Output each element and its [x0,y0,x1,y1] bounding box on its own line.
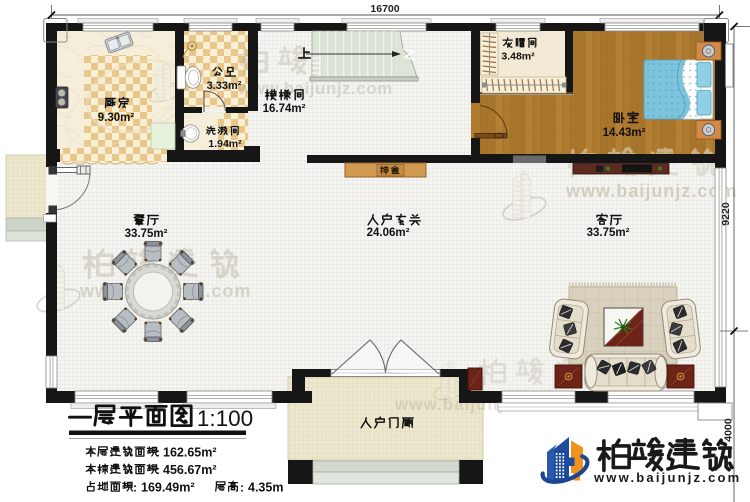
svg-text:16.74m²: 16.74m² [263,103,306,115]
svg-text:169.49m²: 169.49m² [141,481,195,495]
svg-text:www.baijunjz.com: www.baijunjz.com [593,470,741,485]
svg-text:1:100: 1:100 [197,406,253,431]
svg-text:www.baijunjz.com: www.baijunjz.com [237,79,393,98]
svg-text:www.baijunjz.com: www.baijunjz.com [565,181,737,201]
svg-text:14.43m²: 14.43m² [603,127,646,139]
svg-text::: : [156,463,160,477]
svg-text:33.75m²: 33.75m² [125,228,168,240]
svg-text:3.33m²: 3.33m² [207,80,242,92]
svg-text::: : [240,481,244,495]
svg-text:33.75m²: 33.75m² [587,227,630,239]
svg-text:9.30m²: 9.30m² [98,112,135,124]
svg-text:1.94m²: 1.94m² [208,138,242,150]
svg-text:16700: 16700 [370,3,399,15]
svg-text:4000: 4000 [723,418,735,442]
svg-text:9220: 9220 [720,202,732,226]
svg-text:3.48m²: 3.48m² [501,51,535,63]
svg-text::: : [133,481,137,495]
svg-text:4.35m: 4.35m [248,481,283,495]
svg-text:456.67m²: 456.67m² [163,463,217,477]
svg-text:162.65m²: 162.65m² [163,446,217,460]
svg-text:24.06m²: 24.06m² [367,227,410,239]
svg-text::: : [156,446,160,460]
